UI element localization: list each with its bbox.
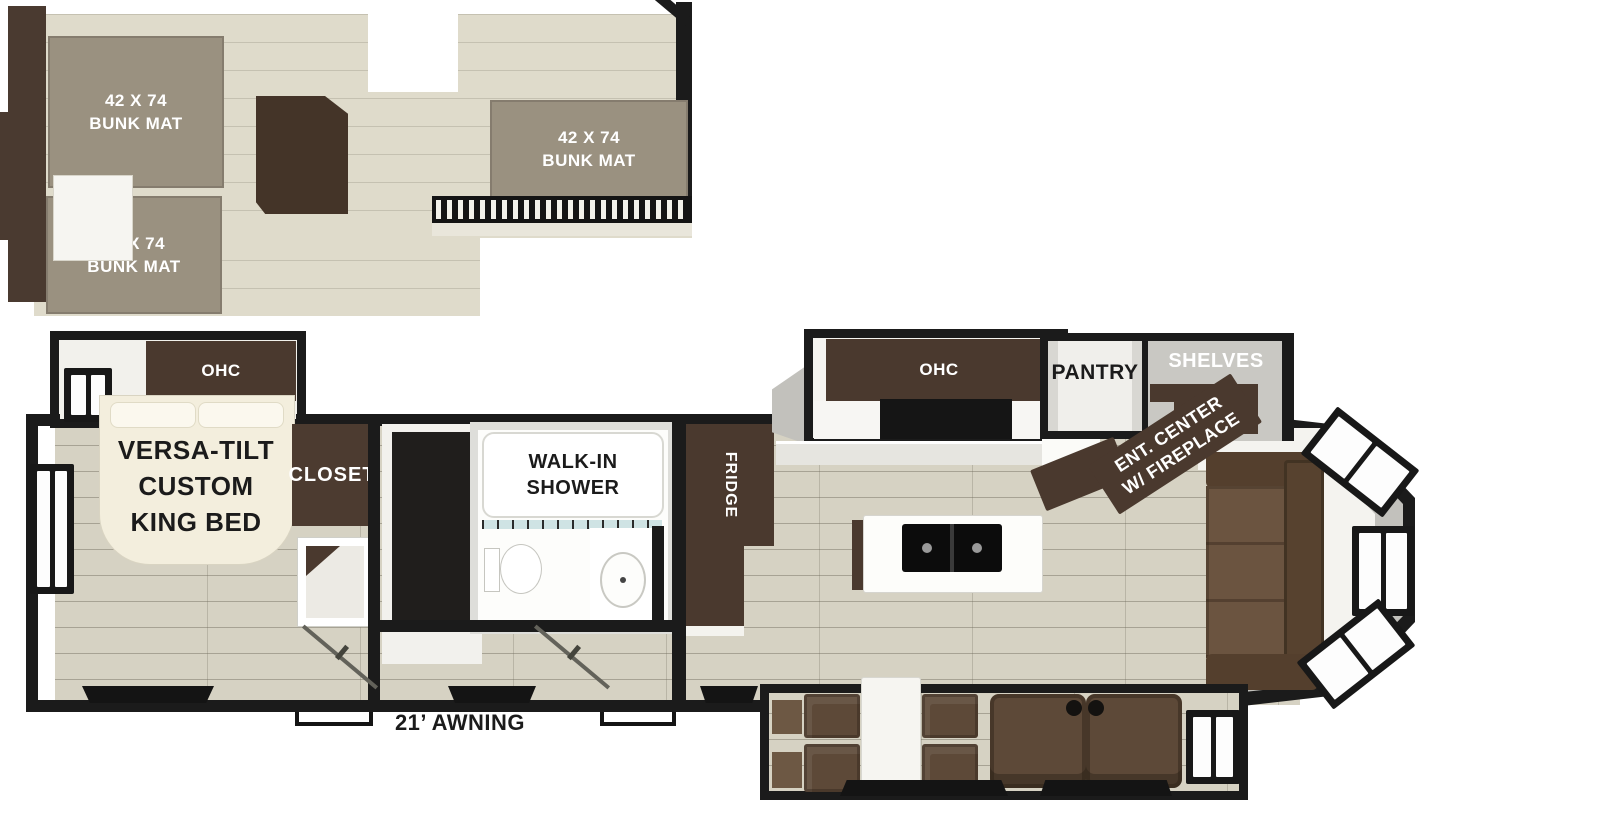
loft-railing-base [432,223,692,236]
dinette-bench-right-top [922,694,978,738]
cup-holder-right [1088,700,1104,716]
bunk-mat-label: BUNK MAT [89,112,182,135]
walk-in-shower: WALK-IN SHOWER [482,432,664,518]
sink-drain-left [922,543,932,553]
rv-floorplan: 42 X 74 BUNK MAT 42 X 74 BUNK MAT 42 X 7… [0,0,1600,823]
dinette-bench-end-top [772,700,802,734]
shelves-right-wall [1282,333,1294,441]
bed-pillow-right [198,402,284,428]
bay-window-middle [1352,526,1414,616]
loft-left-wall-bump [0,112,16,240]
bedroom-bath-wall [368,414,380,712]
shelves-label-wrap: SHELVES [1150,348,1282,374]
kitchen-window [700,686,758,703]
entry-step-main [600,712,676,726]
pantry: PANTRY [1040,333,1150,439]
dinette-table [862,678,920,794]
awning-label: 21’ AWNING [380,708,540,738]
entry-step-bedroom [295,712,373,726]
slide-bottom-window-left [840,780,1008,796]
sink-drain-right [972,543,982,553]
loft-railing [432,196,692,223]
fridge-label: FRIDGE [669,441,791,529]
bath-window [448,686,536,703]
front-wall-window [30,464,74,594]
slide-side-window [1186,710,1240,784]
loft-notch [368,14,458,92]
bath-bottom-wall [368,620,698,632]
fridge-cabinet-lower [686,546,744,626]
fridge-cabinet-cap [686,626,744,636]
loft-bunk-mat-front-top: 42 X 74 BUNK MAT [48,36,224,188]
cooktop [880,399,1012,439]
bed-label-line: KING BED [130,504,261,540]
bedroom-overhead-cabinet: OHC [146,341,296,401]
bunk-mat-label: 42 X 74 [558,126,620,149]
bedroom-window [82,686,214,703]
fridge: FRIDGE [686,424,774,546]
kitchen-base-cabinet [776,441,1060,465]
bunk-mat-label: BUNK MAT [542,149,635,172]
slide-bottom-window-right [1040,780,1172,796]
bath-wardrobe [392,432,470,628]
bath-sink-drain [620,577,626,583]
ohc-label: OHC [919,360,958,380]
shower-label-line: SHOWER [527,475,620,501]
bunk-mat-label: 42 X 74 [105,89,167,112]
dinette-bench-end-bottom [772,752,802,788]
kitchen-slide-sidewall [772,366,806,444]
pantry-label: PANTRY [1052,361,1139,385]
shelves-label: SHELVES [1168,350,1263,373]
bed-label-line: CUSTOM [138,468,253,504]
dinette-bench-left-top [804,694,860,738]
loft-landing [54,176,132,260]
closet: CLOSET [292,424,372,526]
toilet-bowl [500,544,542,594]
sofa-seat [1206,486,1288,658]
bed-label-line: VERSA-TILT [118,432,274,468]
bed-pillow-left [110,402,196,428]
ohc-label: OHC [201,361,240,381]
toilet-tank [484,548,500,592]
loft-bunk-mat-rear: 42 X 74 BUNK MAT [490,100,688,198]
loft-cabinet [256,96,348,214]
top-wall-front [26,414,60,426]
kitchen-overhead-cabinet: OHC [826,339,1052,401]
awning-text: 21’ AWNING [395,710,525,736]
shower-label-line: WALK-IN [528,449,617,475]
bed-label: VERSA-TILT CUSTOM KING BED [96,430,296,542]
closet-label: CLOSET [288,464,375,487]
island-double-sink [902,524,1002,572]
bath-vanity-wall [652,526,664,632]
cup-holder-left [1066,700,1082,716]
